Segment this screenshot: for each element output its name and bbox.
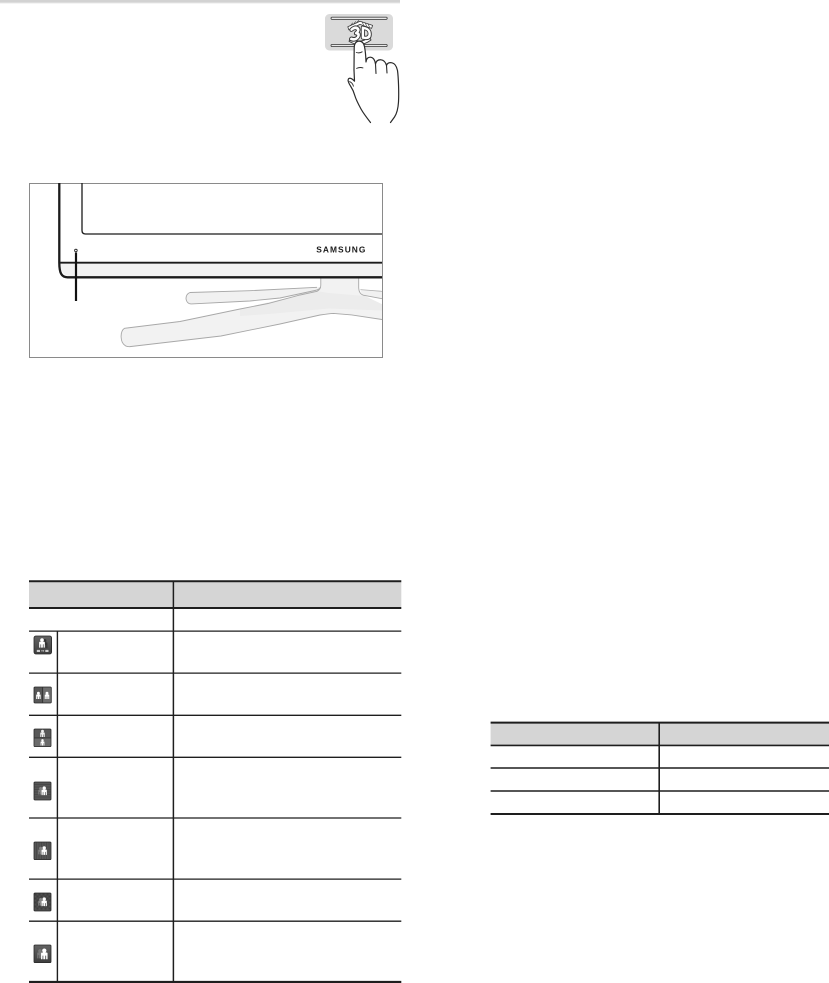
- svg-text:SAMSUNG: SAMSUNG: [316, 245, 366, 255]
